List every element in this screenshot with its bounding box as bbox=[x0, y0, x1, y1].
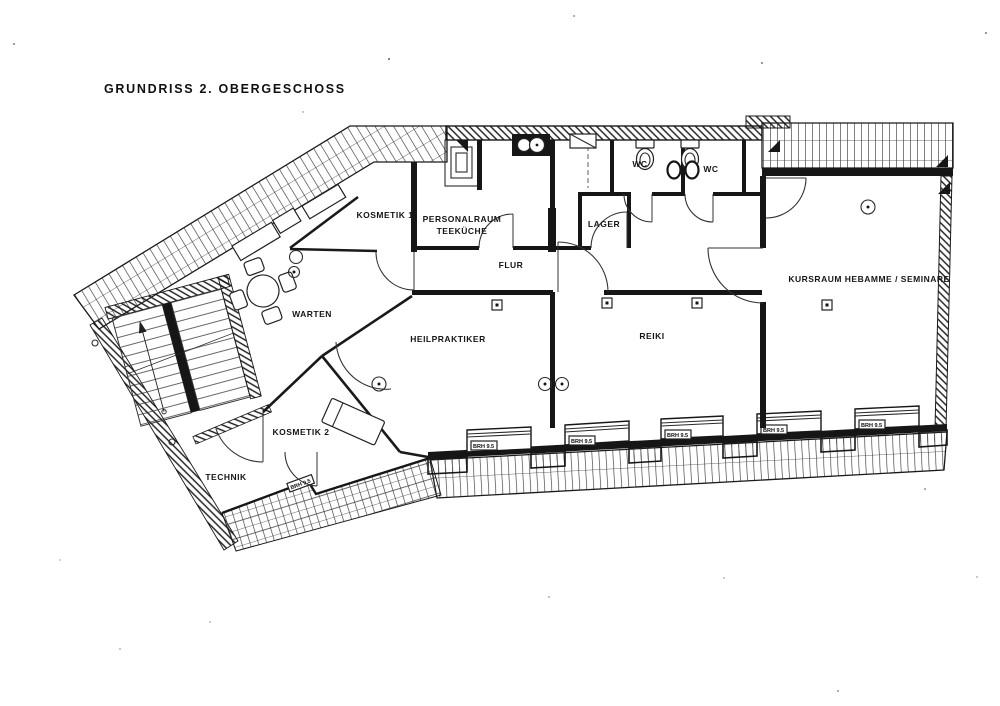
exterior-wall-right bbox=[935, 176, 952, 430]
terrace-band-bottom-left: BRH 9.5 bbox=[222, 458, 441, 551]
page-title: GRUNDRISS 2. OBERGESCHOSS bbox=[104, 82, 346, 96]
room-label-flur: FLUR bbox=[499, 260, 524, 270]
basin-dot bbox=[544, 383, 547, 386]
window-label: BRH 9.5 bbox=[667, 433, 688, 439]
window-bay: BRH 9.5 bbox=[467, 427, 531, 452]
ceiling-lamp-dot bbox=[867, 206, 870, 209]
room-label-wc-left: WC bbox=[632, 159, 647, 169]
room-label-kosmetik2: KOSMETIK 2 bbox=[273, 427, 330, 437]
basin-dot bbox=[378, 383, 381, 386]
room-label-personalraum: PERSONALRAUM bbox=[423, 214, 502, 224]
column-markers bbox=[492, 298, 832, 310]
treatment-bed bbox=[321, 398, 385, 445]
basin-dot bbox=[293, 271, 296, 274]
room-label-kosmetik1: KOSMETIK 1 bbox=[357, 210, 414, 220]
cupboard bbox=[570, 134, 596, 148]
room-label-kursraum: KURSRAUM HEBAMME / SEMINARE bbox=[788, 274, 949, 284]
floorplan-canvas: BRH 9.5 BRH 9.5 BRH 9.5 BRH 9.5 BRH 9.5 bbox=[0, 0, 1000, 706]
scanned-floorplan-page: BRH 9.5 BRH 9.5 BRH 9.5 BRH 9.5 BRH 9.5 bbox=[0, 0, 1000, 706]
window-label: BRH 9.5 bbox=[861, 423, 882, 429]
room-label-technik: TECHNIK bbox=[205, 472, 247, 482]
window-bay: BRH 9.5 bbox=[757, 411, 821, 434]
basin-dot bbox=[561, 383, 564, 386]
room-label-reiki: REIKI bbox=[639, 331, 664, 341]
window-bay: BRH 9.5 bbox=[855, 406, 919, 429]
basin-circle bbox=[290, 251, 303, 264]
window-bay: BRH 9.5 bbox=[661, 416, 723, 439]
terrace-band-top-right bbox=[746, 116, 953, 194]
window-label: BRH 9.5 bbox=[473, 444, 494, 450]
room-label-lager: LAGER bbox=[588, 219, 620, 229]
exterior-wall-top-center bbox=[446, 126, 762, 140]
kitchen-sink-unit bbox=[512, 134, 550, 156]
room-label-warten: WARTEN bbox=[292, 309, 332, 319]
window-label: BRH 9.5 bbox=[571, 439, 592, 445]
room-label-wc-right: WC bbox=[703, 164, 718, 174]
room-label-teekueche: TEEKÜCHE bbox=[437, 226, 488, 236]
room-label-heilpraktiker: HEILPRAKTIKER bbox=[410, 334, 485, 344]
downpipe-marker bbox=[456, 140, 468, 152]
window-bay: BRH 9.5 bbox=[565, 421, 629, 445]
window-label: BRH 9.5 bbox=[763, 428, 784, 434]
drainpipe-marker bbox=[92, 340, 98, 346]
